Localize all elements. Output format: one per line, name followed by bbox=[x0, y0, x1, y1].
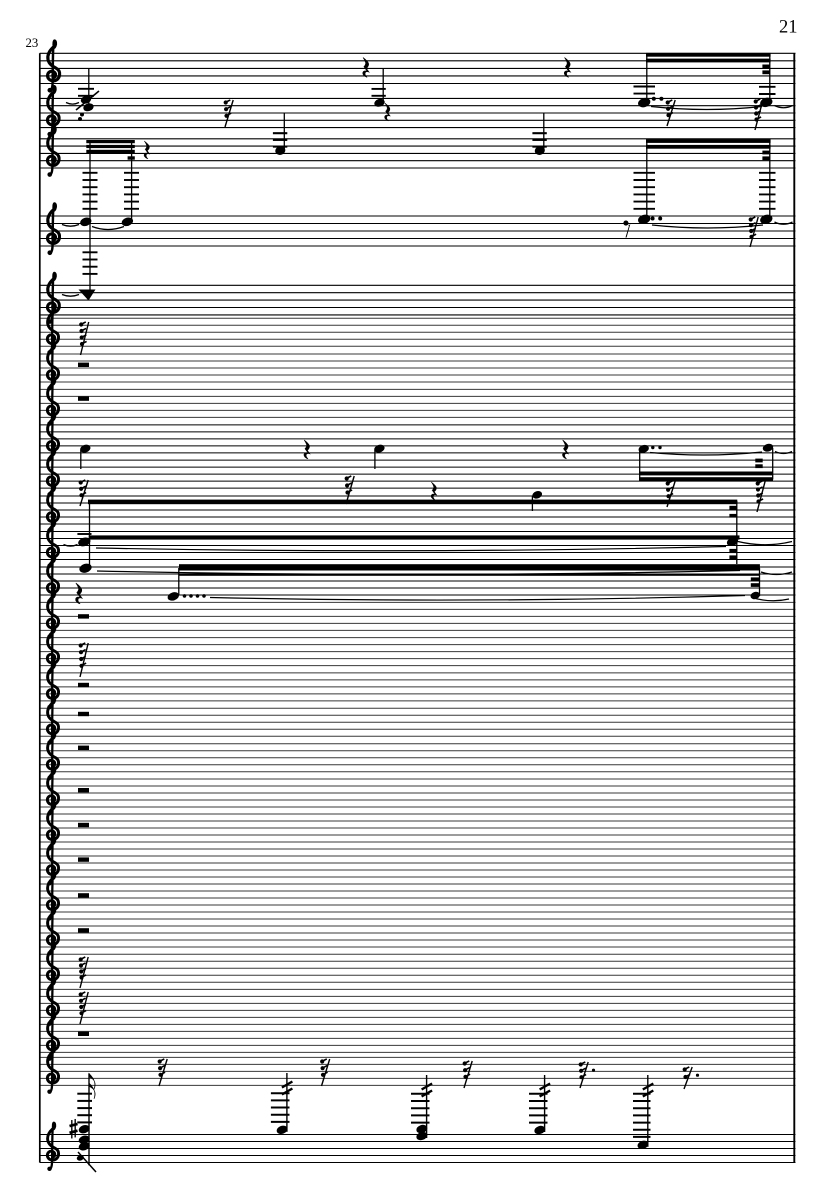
svg-text:23: 23 bbox=[26, 36, 39, 50]
svg-text:21: 21 bbox=[779, 17, 798, 37]
